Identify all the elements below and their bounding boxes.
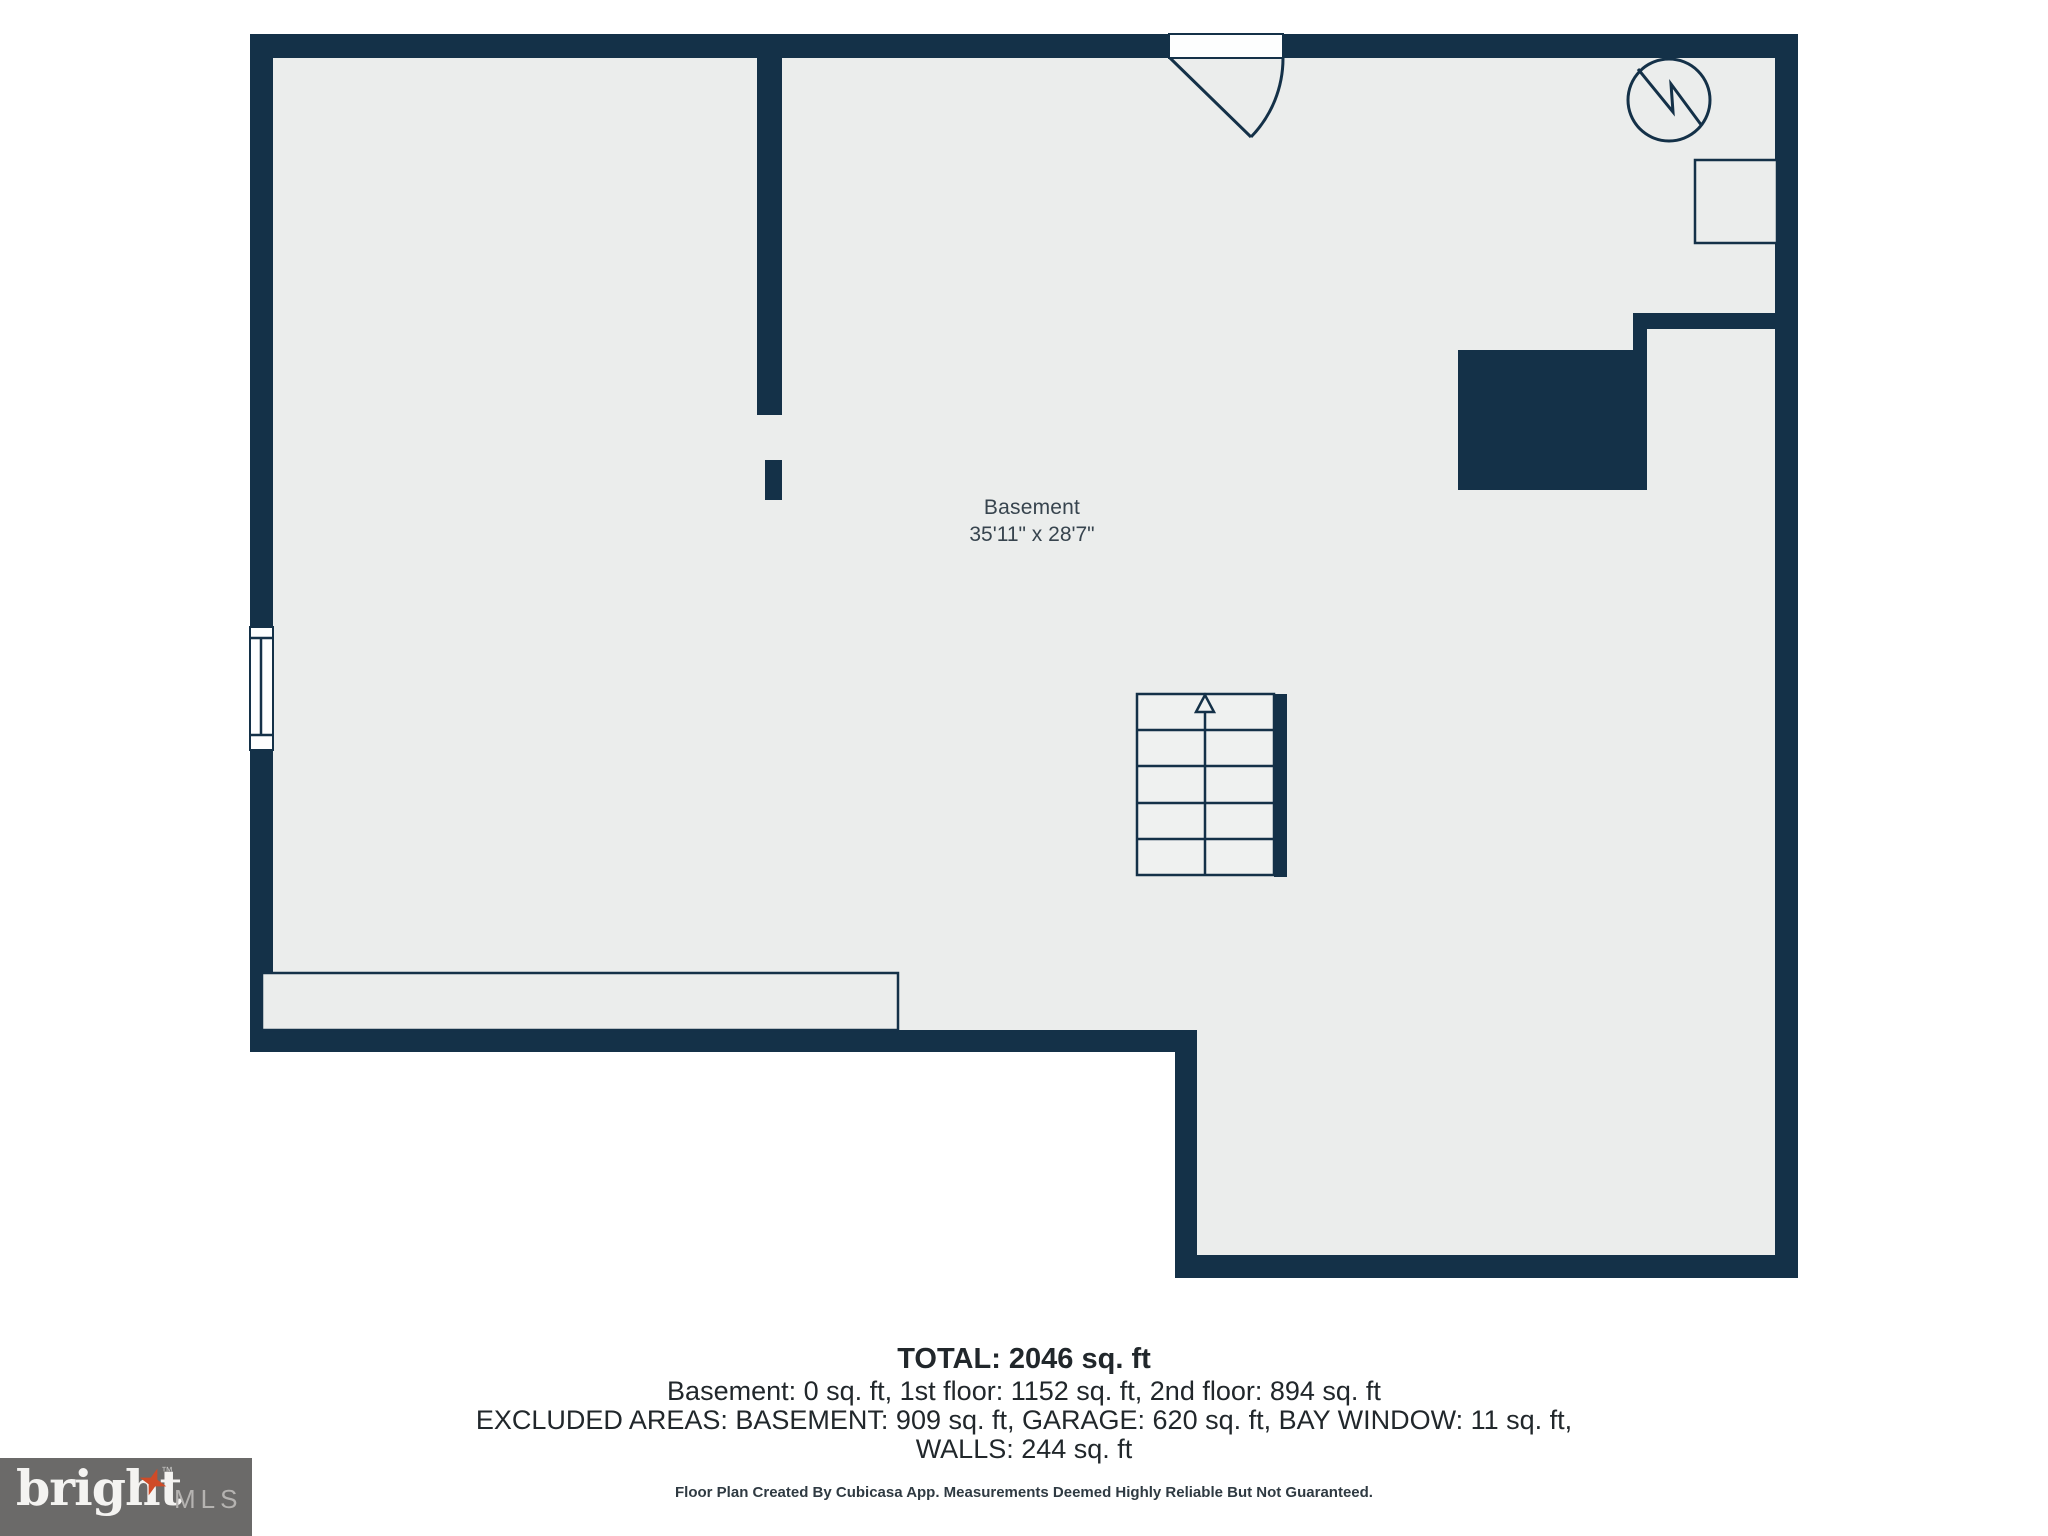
utility-box — [1695, 160, 1777, 243]
wall-bottom-left — [250, 1030, 1197, 1052]
total-area: TOTAL: 2046 sq. ft — [0, 1344, 2048, 1374]
solid-mass-chimney — [1458, 350, 1647, 490]
wall-left — [250, 34, 273, 1052]
interior-wall-stub — [765, 460, 782, 500]
counter-rectangle — [262, 973, 898, 1030]
wall-right — [1775, 34, 1798, 1278]
stairs — [1137, 694, 1274, 875]
star-icon — [139, 1468, 167, 1496]
floor-plan-drawing — [0, 0, 2048, 1536]
room-name: Basement — [892, 494, 1172, 521]
wall-bottom-right — [1175, 1255, 1798, 1278]
stair-side-wall — [1274, 694, 1287, 877]
interior-wall-right-connector — [1633, 313, 1647, 352]
wall-step-vertical — [1175, 1030, 1197, 1278]
interior-wall-vertical — [757, 34, 782, 415]
excluded-areas: EXCLUDED AREAS: BASEMENT: 909 sq. ft, GA… — [0, 1406, 2048, 1435]
room-label: Basement 35'11" x 28'7" — [892, 494, 1172, 548]
floor-plan-page: Basement 35'11" x 28'7" TOTAL: 2046 sq. … — [0, 0, 2048, 1536]
interior-wall-right-stub — [1633, 313, 1798, 329]
window-icon — [250, 627, 273, 750]
door-opening — [1169, 34, 1283, 58]
walls-area: WALLS: 244 sq. ft — [0, 1435, 2048, 1464]
room-dimensions: 35'11" x 28'7" — [892, 521, 1172, 548]
logo-suffix-text: MLS — [174, 1484, 242, 1515]
floor-area — [273, 58, 1775, 1255]
bright-mls-logo: bright ™ MLS — [0, 1458, 252, 1536]
floor-areas: Basement: 0 sq. ft, 1st floor: 1152 sq. … — [0, 1377, 2048, 1406]
disclaimer-text: Floor Plan Created By Cubicasa App. Meas… — [0, 1484, 2048, 1501]
wall-top — [250, 34, 1798, 58]
area-summary: TOTAL: 2046 sq. ft Basement: 0 sq. ft, 1… — [0, 1344, 2048, 1464]
